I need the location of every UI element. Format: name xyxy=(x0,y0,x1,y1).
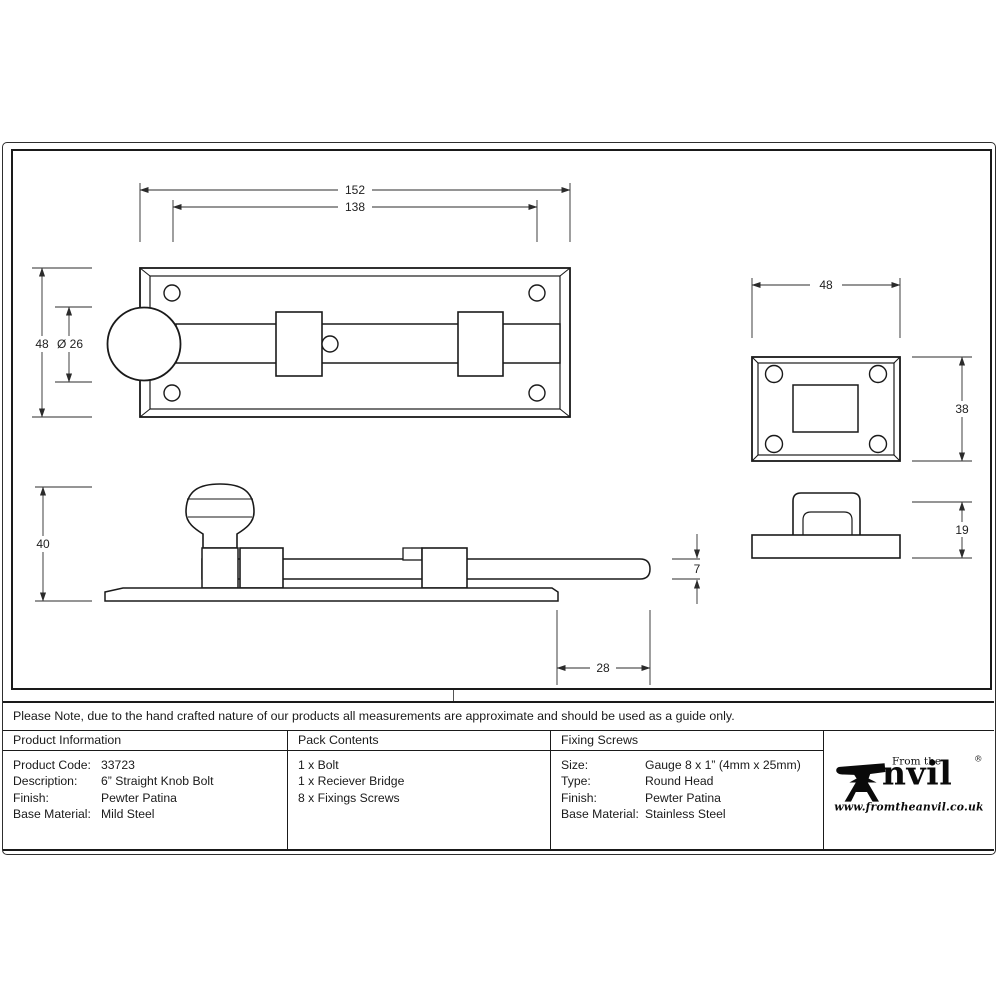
dim-bolt-thickness: 7 xyxy=(672,534,701,604)
pack-contents-header: Pack Contents xyxy=(288,731,550,752)
knob-side xyxy=(186,484,254,548)
screw-hole xyxy=(870,366,887,383)
product-information-column: Product Information Product Code:33723 D… xyxy=(3,731,287,850)
table-row: Finish:Pewter Patina xyxy=(13,790,287,806)
spec-table: Please Note, due to the hand crafted nat… xyxy=(3,701,994,851)
svg-text:152: 152 xyxy=(345,183,365,197)
svg-text:28: 28 xyxy=(596,661,610,675)
measurements-note: Please Note, due to the hand crafted nat… xyxy=(3,703,994,731)
technical-drawing: 152 138 48 Ø 26 xyxy=(11,149,992,690)
receiver-base-side xyxy=(752,535,900,558)
keeper-bracket-side xyxy=(240,548,283,588)
note-text: Please Note, due to the hand crafted nat… xyxy=(13,709,735,723)
product-information-header: Product Information xyxy=(3,731,287,752)
dim-receiver-width: 48 xyxy=(752,277,900,338)
fixing-screws-column: Fixing Screws Size:Gauge 8 x 1” (4mm x 2… xyxy=(550,731,823,850)
table-row: Base Material:Mild Steel xyxy=(13,806,287,822)
screw-hole xyxy=(529,285,545,301)
svg-text:48: 48 xyxy=(819,278,833,292)
base-plate-side xyxy=(105,588,558,601)
logo-website: www.fromtheanvil.co.uk xyxy=(833,800,985,813)
table-row: Product Code:33723 xyxy=(13,757,287,773)
screw-hole xyxy=(529,385,545,401)
screw-hole xyxy=(766,366,783,383)
dim-hole-spacing: 138 xyxy=(173,199,537,242)
screw-hole xyxy=(766,436,783,453)
knob-front xyxy=(108,308,181,381)
anvil-icon xyxy=(833,762,889,802)
table-row: Description:6” Straight Knob Bolt xyxy=(13,773,287,789)
spec-sheet: 152 138 48 Ø 26 xyxy=(0,0,1000,1000)
receiver-front-view xyxy=(752,357,900,461)
table-row: Type:Round Head xyxy=(561,773,823,789)
dim-receiver-height: 38 xyxy=(912,357,977,461)
dim-bolt-extension: 28 xyxy=(557,610,650,685)
receiver-side-view xyxy=(752,493,900,558)
dim-bridge-height: 19 xyxy=(912,502,976,558)
bolt-pin xyxy=(322,336,338,352)
keeper-bracket xyxy=(458,312,503,376)
keeper-bracket-side xyxy=(422,548,467,588)
table-row: Size:Gauge 8 x 1” (4mm x 25mm) xyxy=(561,757,823,773)
svg-text:38: 38 xyxy=(955,402,969,416)
screw-hole xyxy=(164,285,180,301)
keeper-bracket xyxy=(276,312,322,376)
screw-hole xyxy=(870,436,887,453)
brand-column: From the nvil ® www.fromtheanvil.co.uk xyxy=(823,731,994,850)
svg-text:19: 19 xyxy=(955,523,969,537)
bolt-side-view xyxy=(105,484,650,601)
from-the-anvil-logo: From the nvil ® www.fromtheanvil.co.uk xyxy=(833,755,985,819)
knob-stem xyxy=(202,548,238,588)
list-item: 1 x Reciever Bridge xyxy=(298,773,550,789)
logo-wordmark: nvil xyxy=(882,756,952,789)
svg-text:48: 48 xyxy=(35,337,49,351)
fixing-screws-header: Fixing Screws xyxy=(551,731,823,752)
list-item: 8 x Fixings Screws xyxy=(298,790,550,806)
registered-mark: ® xyxy=(974,754,983,764)
svg-text:40: 40 xyxy=(36,537,50,551)
bolt-front-view xyxy=(108,268,571,417)
dim-knob-diameter: Ø 26 xyxy=(54,307,92,382)
table-row: Finish:Pewter Patina xyxy=(561,790,823,806)
table-row: Base Material:Stainless Steel xyxy=(561,806,823,822)
pack-contents-column: Pack Contents 1 x Bolt 1 x Reciever Brid… xyxy=(287,731,550,850)
screw-hole xyxy=(164,385,180,401)
svg-text:Ø 26: Ø 26 xyxy=(57,337,83,351)
keeper-tab xyxy=(403,548,422,560)
list-item: 1 x Bolt xyxy=(298,757,550,773)
svg-text:138: 138 xyxy=(345,200,365,214)
svg-text:7: 7 xyxy=(694,562,701,576)
dim-side-height: 40 xyxy=(33,487,92,601)
